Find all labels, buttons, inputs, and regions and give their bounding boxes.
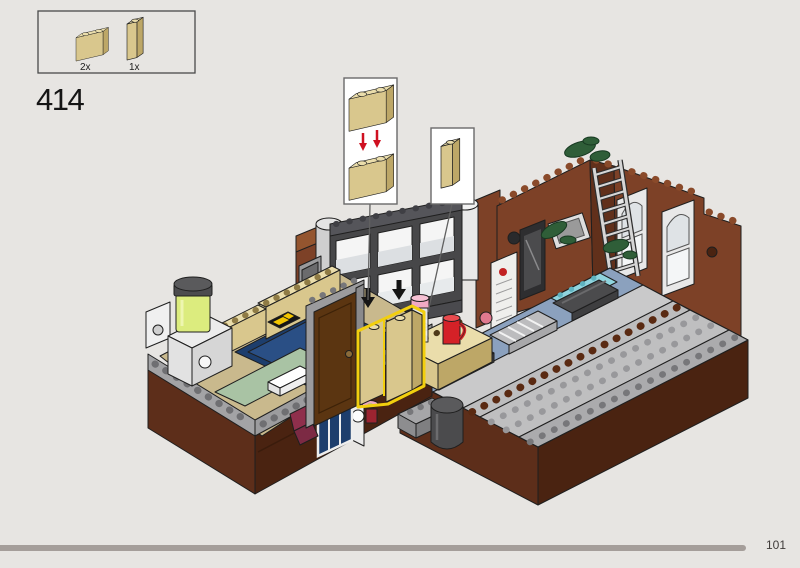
instruction-page: MENU	[0, 0, 800, 568]
wooden-door	[306, 278, 364, 428]
brick-1x1-tall-tan-icon	[127, 17, 143, 60]
part-count-label: 1x	[129, 62, 140, 73]
step-number: 414	[36, 82, 83, 118]
part-count-label: 2x	[80, 62, 91, 73]
stacking-callout-box	[344, 78, 397, 204]
instruction-illustration: MENU	[0, 0, 800, 568]
trash-can	[431, 397, 463, 449]
round-wall-lamp	[508, 232, 520, 244]
brick-1x1-tall-tan-icon	[441, 138, 460, 188]
parts-inventory-box	[38, 11, 195, 73]
arched-window-2	[662, 200, 694, 296]
single-brick-callout-box	[431, 128, 474, 204]
red-cup	[366, 409, 377, 423]
pink-round-piece	[480, 312, 492, 324]
progress-bar	[0, 545, 746, 551]
brick-1x2-tan-icon	[76, 27, 108, 61]
round-wall-hole	[707, 247, 717, 257]
page-number: 101	[766, 538, 786, 552]
